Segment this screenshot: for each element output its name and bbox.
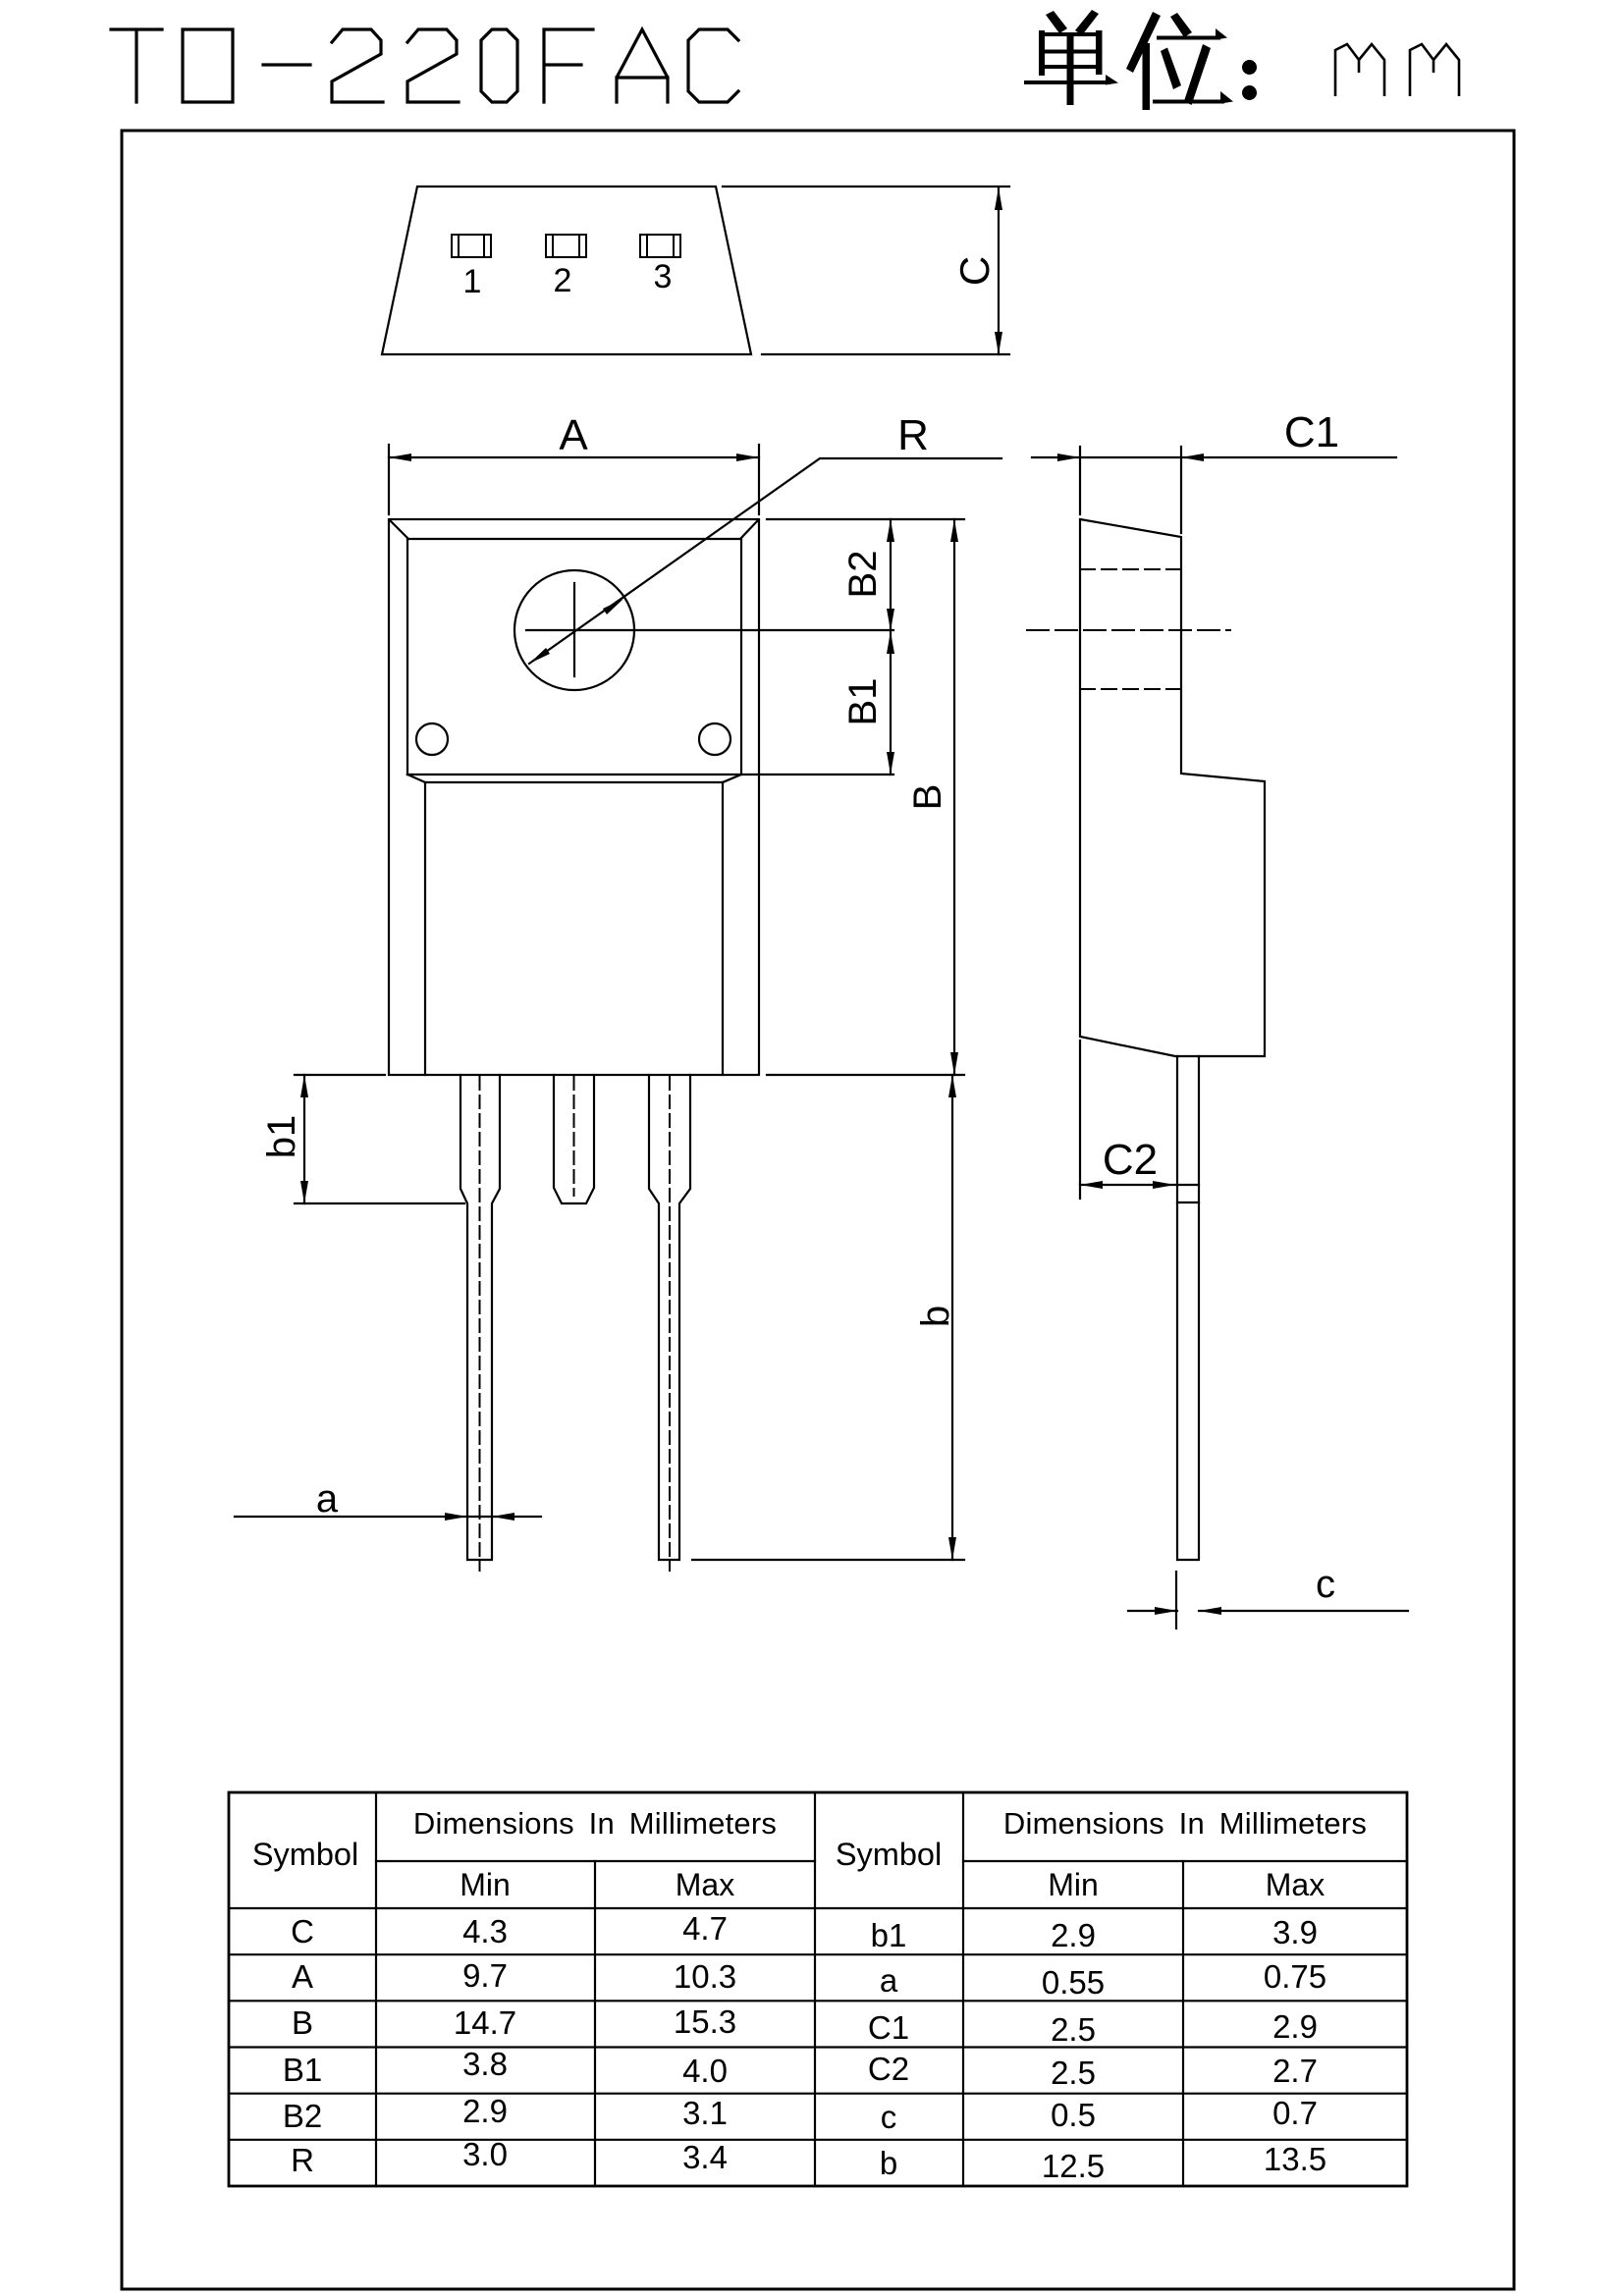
svg-text:10.3: 10.3 [674, 1958, 736, 1995]
svg-text:12.5: 12.5 [1042, 2148, 1105, 2184]
svg-text:Min: Min [460, 1867, 511, 1902]
svg-text:0.5: 0.5 [1051, 2097, 1096, 2133]
svg-text:2.9: 2.9 [462, 2093, 508, 2129]
svg-text:3.9: 3.9 [1272, 1914, 1318, 1950]
svg-text:b1: b1 [871, 1917, 907, 1953]
svg-text:15.3: 15.3 [674, 2003, 736, 2040]
svg-text:Symbol: Symbol [836, 1837, 942, 1872]
svg-text:2.5: 2.5 [1051, 2011, 1096, 2048]
svg-text:0.55: 0.55 [1042, 1964, 1105, 2001]
svg-text:C: C [951, 256, 998, 286]
svg-text:14.7: 14.7 [454, 2004, 516, 2041]
svg-text:13.5: 13.5 [1264, 2141, 1326, 2177]
svg-text:Dimensions In Millimeters: Dimensions In Millimeters [413, 1806, 777, 1841]
svg-text:Min: Min [1048, 1867, 1099, 1902]
svg-text:R: R [897, 411, 929, 459]
svg-text:C2: C2 [1103, 1136, 1158, 1184]
svg-text:Dimensions In Millimeters: Dimensions In Millimeters [1003, 1806, 1367, 1841]
svg-text:c: c [881, 2099, 897, 2135]
svg-text:3.4: 3.4 [682, 2139, 728, 2175]
svg-text:3.8: 3.8 [462, 2046, 508, 2082]
svg-text:3.0: 3.0 [462, 2136, 508, 2172]
svg-text:1: 1 [463, 263, 482, 300]
svg-text:C: C [291, 1913, 314, 1949]
svg-text:Max: Max [1266, 1867, 1325, 1902]
svg-text:B2: B2 [841, 551, 885, 599]
svg-text:C1: C1 [1284, 408, 1339, 456]
svg-text:4.7: 4.7 [682, 1910, 728, 1947]
svg-text:3: 3 [654, 258, 673, 295]
svg-text:B: B [906, 784, 949, 811]
svg-text:0.7: 0.7 [1272, 2095, 1318, 2131]
svg-text:Max: Max [676, 1867, 734, 1902]
svg-text:4.0: 4.0 [682, 2053, 728, 2089]
svg-text:c: c [1316, 1563, 1335, 1606]
svg-text:b1: b1 [260, 1115, 303, 1159]
svg-text:A: A [292, 1958, 313, 1995]
svg-text:2.9: 2.9 [1051, 1917, 1096, 1953]
svg-text:3.1: 3.1 [682, 2095, 728, 2131]
svg-text:0.75: 0.75 [1264, 1958, 1326, 1995]
svg-text:C1: C1 [868, 2009, 909, 2046]
svg-text:a: a [316, 1477, 339, 1521]
svg-text:B1: B1 [283, 2052, 322, 2088]
svg-text:2: 2 [554, 262, 572, 299]
svg-text:2.5: 2.5 [1051, 2055, 1096, 2091]
svg-text:a: a [880, 1962, 898, 1999]
svg-text:Symbol: Symbol [252, 1837, 358, 1872]
svg-text:B2: B2 [283, 2098, 322, 2134]
svg-text:C2: C2 [868, 2051, 909, 2087]
svg-text:9.7: 9.7 [462, 1957, 508, 1994]
svg-text:b: b [880, 2145, 897, 2181]
svg-text:b: b [914, 1306, 957, 1327]
svg-text:R: R [291, 2142, 314, 2178]
svg-text:2.9: 2.9 [1272, 2008, 1318, 2045]
svg-text:2.7: 2.7 [1272, 2053, 1318, 2089]
svg-text:A: A [559, 411, 588, 459]
svg-text:4.3: 4.3 [462, 1913, 508, 1949]
svg-text:B: B [292, 2004, 313, 2041]
svg-text:B1: B1 [841, 678, 885, 726]
